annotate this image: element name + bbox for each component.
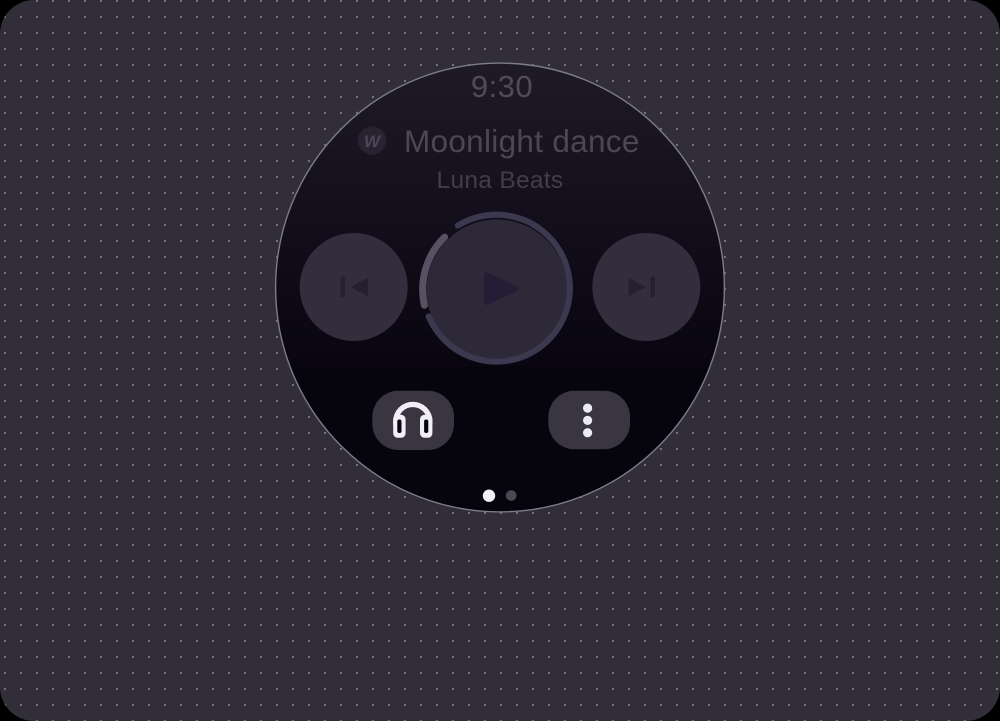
svg-text:9:30: 9:30	[471, 69, 533, 104]
svg-text:Luna Beats: Luna Beats	[437, 167, 564, 194]
svg-text:W: W	[364, 132, 382, 151]
svg-text:Moonlight dance: Moonlight dance	[404, 123, 640, 159]
